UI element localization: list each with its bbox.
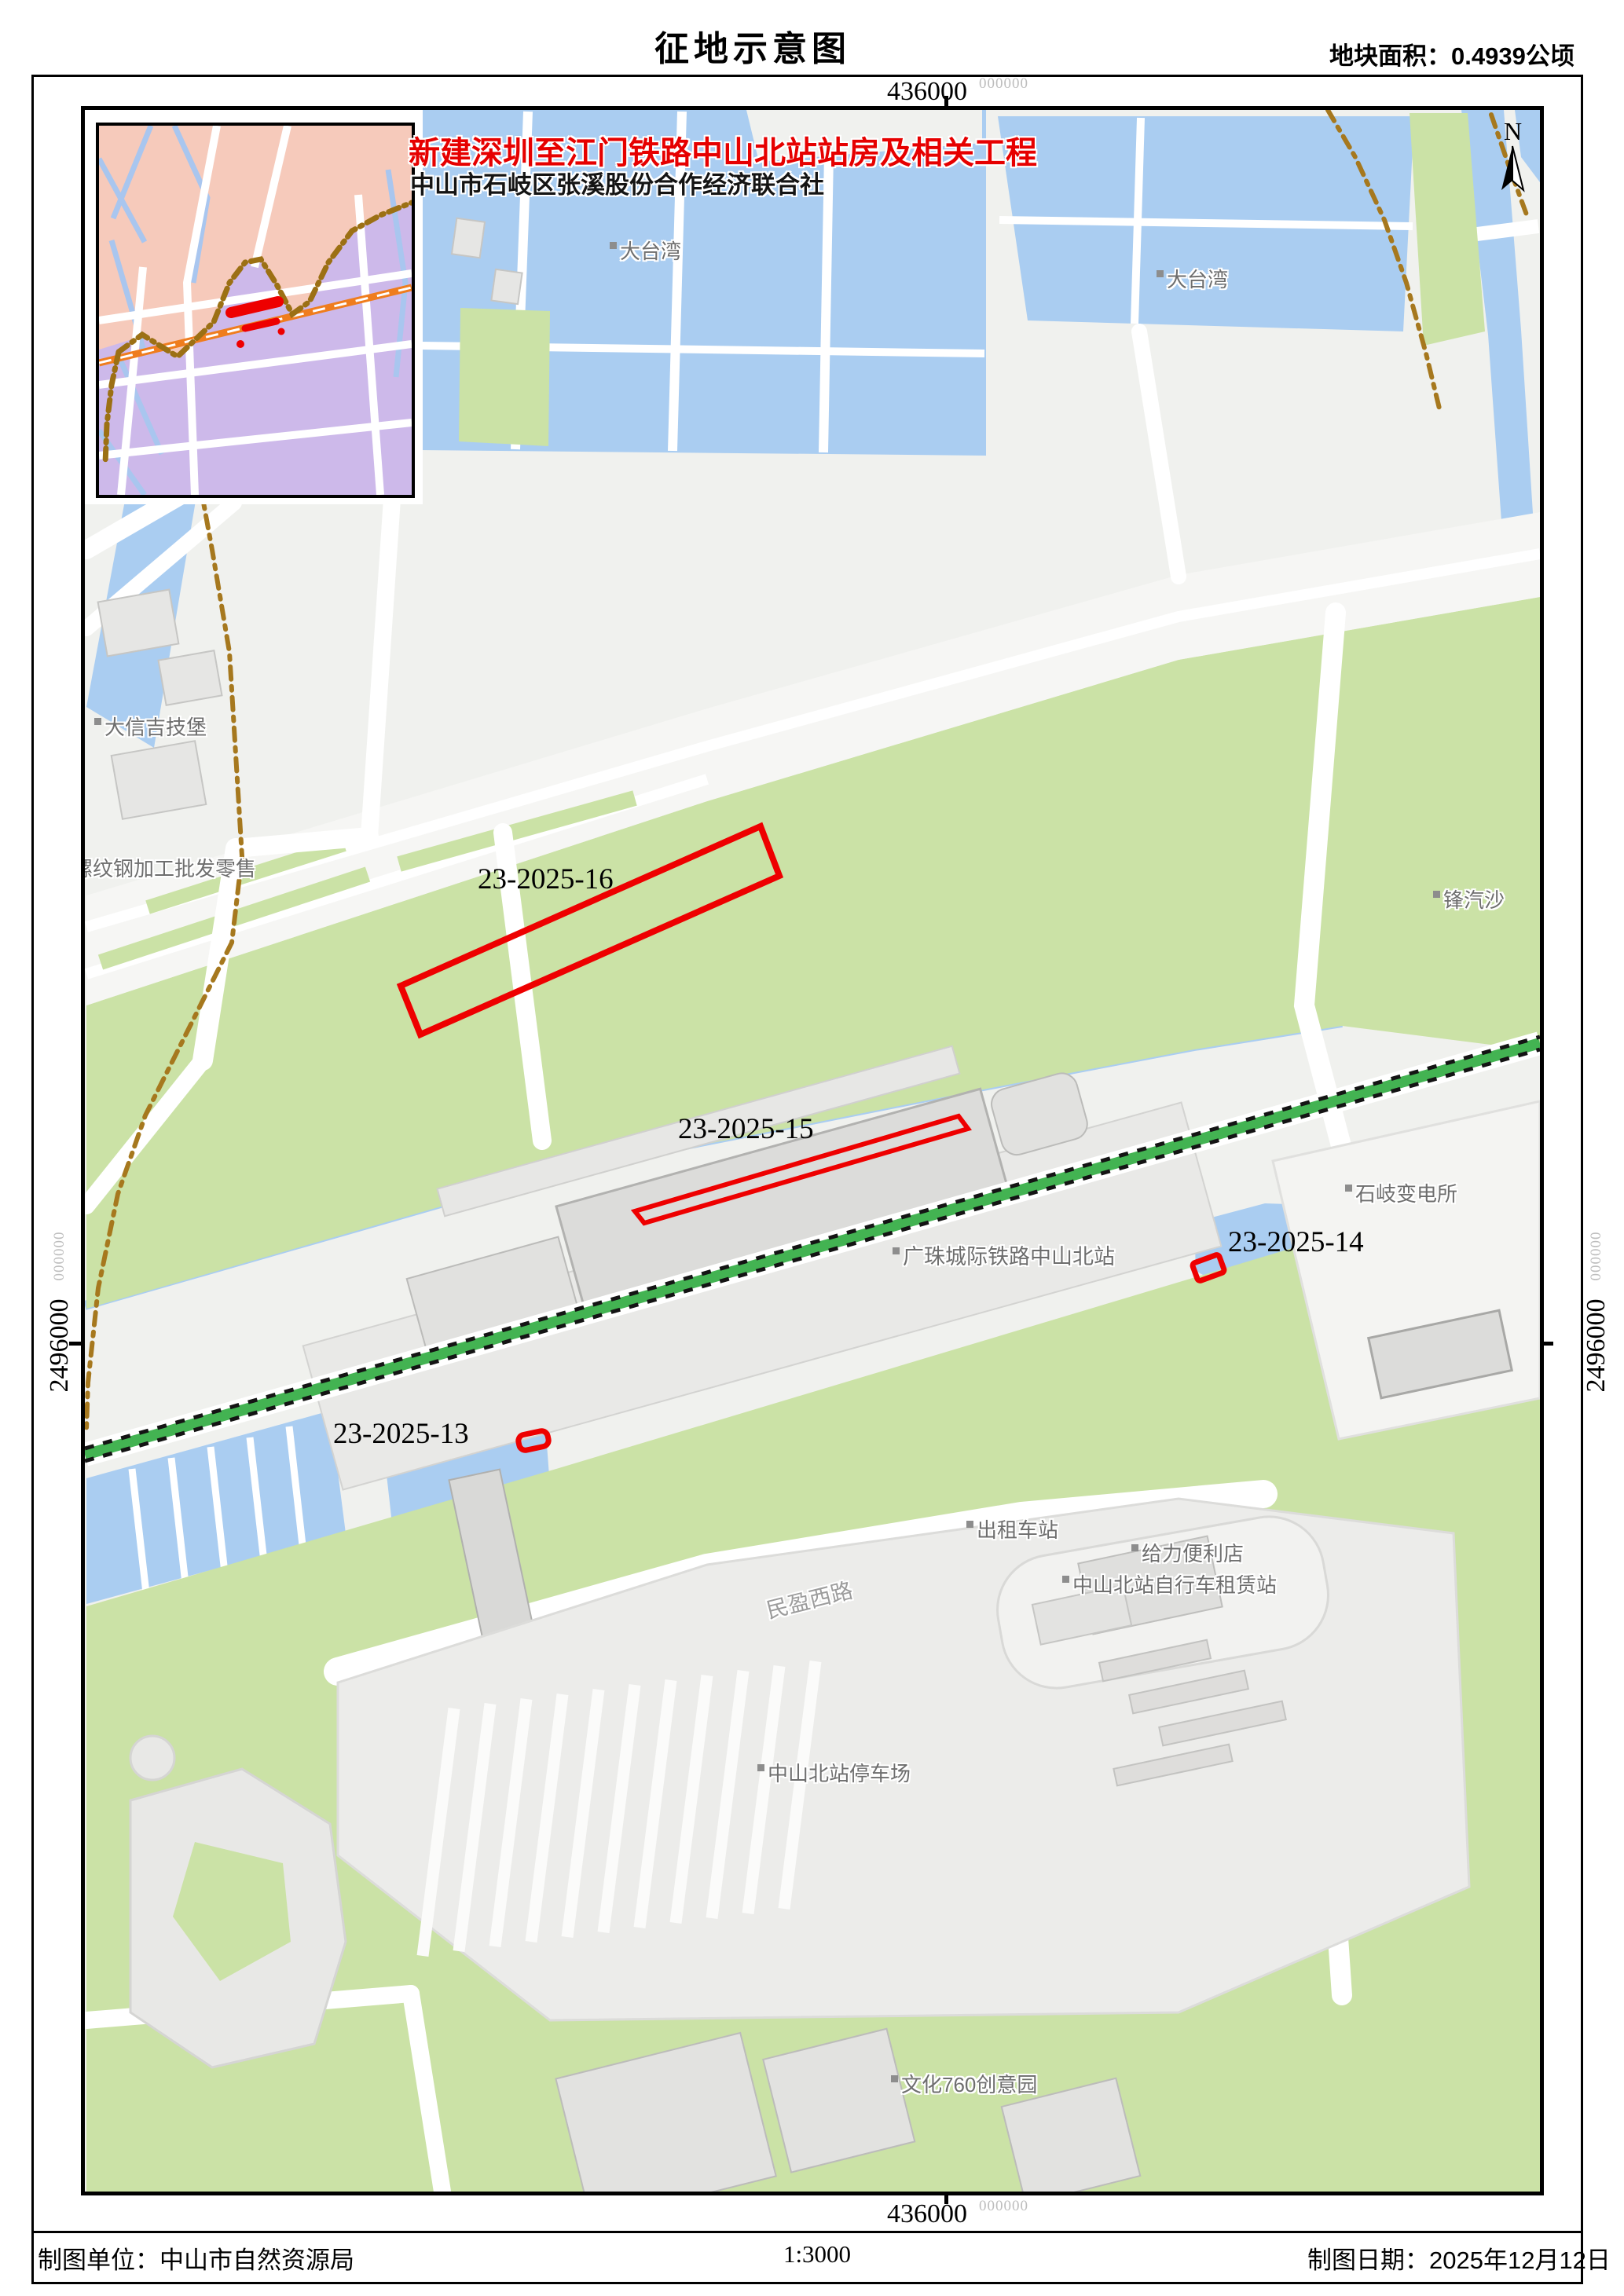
poi-marker-icon bbox=[610, 242, 617, 249]
parcel-area-note: 地块面积：0.4939公顷 bbox=[1329, 36, 1575, 71]
poi-label-store: 给力便利店 bbox=[1131, 1538, 1244, 1567]
poi-marker-icon bbox=[757, 1764, 764, 1771]
poi-marker-icon bbox=[94, 718, 101, 725]
grid-x-bottom: 436000 bbox=[880, 2199, 974, 2229]
parcel-label-23-2025-16: 23-2025-16 bbox=[478, 862, 614, 896]
poi-marker-icon bbox=[966, 1521, 973, 1528]
poi-label-substation: 石岐变电所 bbox=[1345, 1178, 1457, 1207]
poi-label-creative-park: 文化760创意园 bbox=[891, 2069, 1037, 2098]
grid-y-left: 2496000 bbox=[45, 1291, 75, 1401]
poi-label-dataiwan-2: 大台湾 bbox=[1157, 264, 1228, 293]
poi-marker-icon bbox=[1131, 1544, 1138, 1551]
map-sheet: 征地示意图 地块面积：0.4939公顷 436000 000000 436000… bbox=[0, 0, 1624, 2296]
poi-label-taxi-stand: 出租车站 bbox=[966, 1514, 1058, 1543]
poi-label-station: 广珠城际铁路中山北站 bbox=[893, 1240, 1115, 1270]
poi-label-daxinjitibao: 大信吉技堡 bbox=[94, 712, 207, 741]
grid-y-right: 2496000 bbox=[1582, 1291, 1611, 1401]
poi-label-parking-lot: 中山北站停车场 bbox=[757, 1758, 911, 1787]
footer-scale: 1:3000 bbox=[739, 2240, 896, 2269]
parcel-label-23-2025-14: 23-2025-14 bbox=[1228, 1225, 1364, 1259]
poi-label-rebar-shop: 螺纹钢加工批发零售 bbox=[81, 853, 256, 882]
footer-divider bbox=[31, 2231, 1583, 2233]
inset-map-graphic bbox=[99, 126, 412, 495]
grid-tick-bottom bbox=[944, 2195, 948, 2204]
poi-label-fengqisha: 锋汽沙 bbox=[1433, 884, 1505, 914]
poi-label-dataiwan-1: 大台湾 bbox=[610, 236, 681, 265]
map-canvas: N bbox=[81, 106, 1544, 2195]
north-label: N bbox=[1504, 117, 1522, 145]
poi-marker-icon bbox=[891, 2075, 898, 2082]
parcel-label-23-2025-13: 23-2025-13 bbox=[333, 1417, 469, 1451]
poi-marker-icon bbox=[1433, 891, 1440, 898]
footer-date: 制图日期：2025年12月12日 bbox=[1307, 2240, 1611, 2276]
page-title: 征地示意图 bbox=[654, 20, 969, 71]
footer-agency: 制图单位：中山市自然资源局 bbox=[38, 2240, 354, 2276]
poi-marker-icon bbox=[893, 1247, 900, 1254]
grid-x-bottom-sub: 000000 bbox=[979, 2198, 1028, 2215]
project-org: 中山市石岐区张溪股份合作经济联合社 bbox=[410, 165, 824, 200]
poi-label-bike-rental: 中山北站自行车租赁站 bbox=[1062, 1569, 1277, 1598]
grid-x-top: 436000 bbox=[880, 77, 974, 107]
inset-frame bbox=[96, 123, 415, 498]
poi-marker-icon bbox=[1062, 1576, 1069, 1583]
poi-marker-icon bbox=[1345, 1185, 1352, 1192]
poi-marker-icon bbox=[1157, 270, 1164, 277]
grid-x-top-sub: 000000 bbox=[979, 75, 1028, 93]
inset-locator-map bbox=[85, 110, 423, 504]
parcel-label-23-2025-15: 23-2025-15 bbox=[678, 1112, 814, 1146]
grid-tick-top bbox=[944, 96, 948, 107]
grid-y-right-sub: 000000 bbox=[1588, 1217, 1605, 1295]
grid-y-left-sub: 000000 bbox=[51, 1217, 68, 1295]
